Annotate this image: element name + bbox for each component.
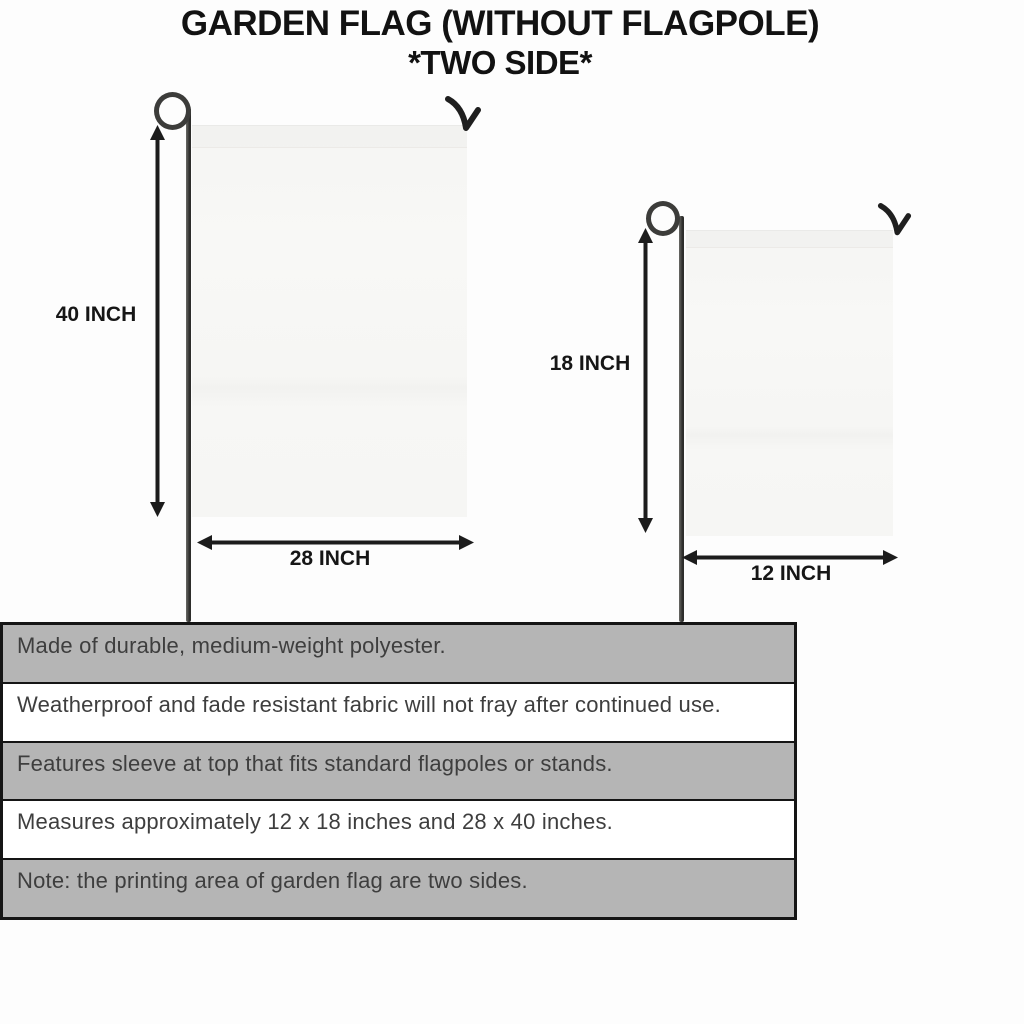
- table-row: Weatherproof and fade resistant fabric w…: [3, 684, 794, 743]
- height-label: 18 INCH: [542, 352, 638, 376]
- hook-icon: [444, 95, 482, 135]
- flag-sleeve: [192, 125, 467, 148]
- product-size-diagram: GARDEN FLAG (WITHOUT FLAGPOLE) *TWO SIDE…: [0, 0, 1024, 1024]
- page-title: GARDEN FLAG (WITHOUT FLAGPOLE) *TWO SIDE…: [0, 4, 1000, 81]
- hook-icon: [877, 202, 912, 239]
- up-down-arrow-icon: [636, 228, 655, 533]
- specs-table: Made of durable, medium-weight polyester…: [0, 622, 797, 920]
- table-row: Features sleeve at top that fits standar…: [3, 743, 794, 802]
- width-label: 28 INCH: [255, 547, 405, 571]
- small-flag-canvas: [686, 230, 893, 536]
- title-line-2: *TWO SIDE*: [0, 44, 1000, 81]
- height-label: 40 INCH: [48, 303, 144, 327]
- flag-sleeve: [686, 230, 893, 248]
- up-down-arrow-icon: [148, 125, 167, 517]
- large-flag-canvas: [192, 125, 467, 517]
- table-row: Made of durable, medium-weight polyester…: [3, 625, 794, 684]
- table-row: Measures approximately 12 x 18 inches an…: [3, 801, 794, 860]
- width-label: 12 INCH: [716, 562, 866, 586]
- table-row: Note: the printing area of garden flag a…: [3, 860, 794, 917]
- title-line-1: GARDEN FLAG (WITHOUT FLAGPOLE): [0, 4, 1000, 44]
- flagpole: [186, 108, 191, 622]
